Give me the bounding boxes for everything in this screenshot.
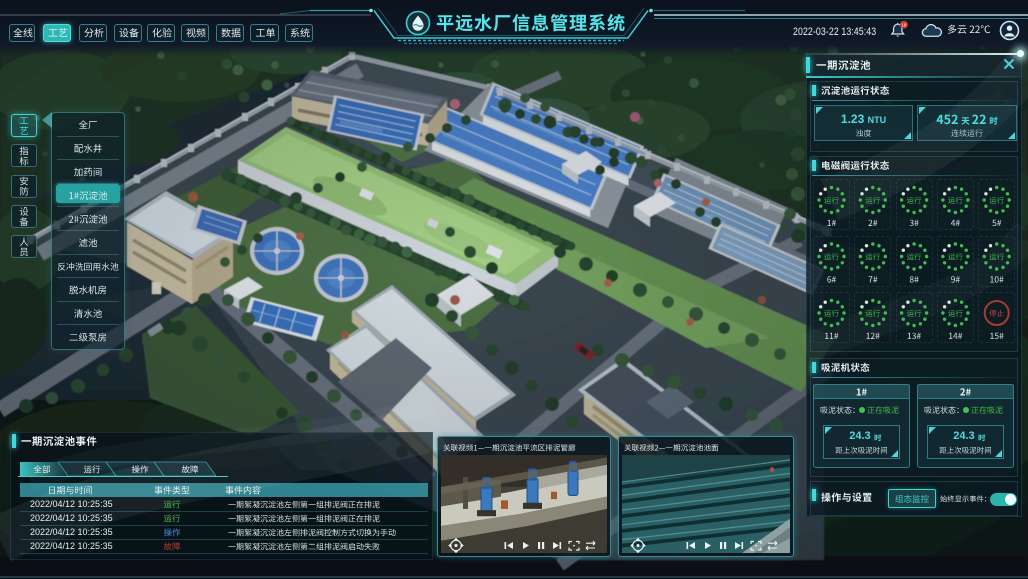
svg-text:18: 18 <box>901 22 907 28</box>
